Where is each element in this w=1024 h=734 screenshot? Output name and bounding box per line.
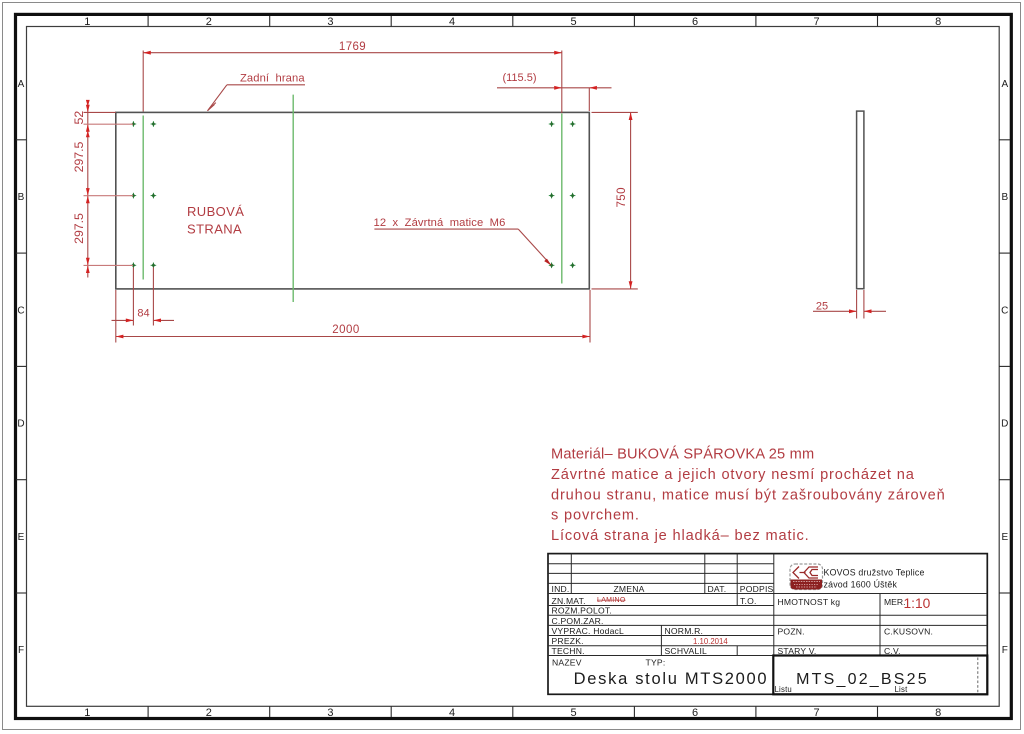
svg-text:5: 5 — [570, 707, 576, 719]
svg-text:7: 7 — [814, 707, 820, 719]
svg-text:4: 4 — [449, 707, 455, 719]
svg-text:PODPIS: PODPIS — [740, 584, 774, 594]
svg-text:7: 7 — [814, 16, 820, 28]
svg-text:Zadní hrana: Zadní hrana — [240, 73, 305, 85]
svg-text:1: 1 — [84, 16, 90, 28]
svg-text:6: 6 — [692, 707, 698, 719]
svg-text:C.POM.ZAR.: C.POM.ZAR. — [552, 616, 604, 626]
svg-text:KOVOS družstvo Teplice: KOVOS družstvo Teplice — [824, 567, 925, 577]
svg-text:1769: 1769 — [339, 41, 366, 53]
svg-text:C: C — [1001, 305, 1008, 316]
svg-text:MTS_02_BS25: MTS_02_BS25 — [796, 671, 929, 688]
svg-text:SCHVALIL: SCHVALIL — [665, 646, 708, 656]
svg-text:DAT.: DAT. — [708, 584, 727, 594]
svg-text:D: D — [1001, 419, 1008, 430]
svg-text:A: A — [18, 79, 25, 90]
svg-text:D: D — [17, 419, 24, 430]
svg-text:750: 750 — [616, 187, 628, 207]
svg-text:297.5: 297.5 — [72, 141, 86, 172]
svg-text:NAZEV: NAZEV — [552, 657, 582, 667]
svg-text:1.10.2014: 1.10.2014 — [693, 637, 728, 646]
svg-text:B: B — [1001, 192, 1008, 203]
svg-text:STRANA: STRANA — [187, 222, 242, 237]
svg-text:druhou stranu, matice musí být: druhou stranu, matice musí být zašroubov… — [551, 487, 946, 503]
svg-text:84: 84 — [137, 307, 149, 319]
svg-text:3: 3 — [327, 16, 333, 28]
svg-text:Lícová strana je hladká– bez m: Lícová strana je hladká– bez matic. — [551, 528, 810, 544]
svg-text:PREZK.: PREZK. — [552, 636, 584, 646]
svg-text:POZN.: POZN. — [778, 626, 805, 636]
svg-text:297.5: 297.5 — [72, 213, 86, 244]
svg-text:VYPRAC. HodacL: VYPRAC. HodacL — [552, 626, 625, 636]
svg-text:B: B — [18, 192, 25, 203]
svg-text:TECHN.: TECHN. — [552, 646, 585, 656]
svg-text:6: 6 — [692, 16, 698, 28]
svg-text:5: 5 — [570, 16, 576, 28]
svg-text:2: 2 — [206, 707, 212, 719]
svg-text:HMOTNOST kg: HMOTNOST kg — [778, 597, 841, 607]
svg-text:T.O.: T.O. — [740, 596, 757, 606]
svg-text:8: 8 — [935, 16, 941, 28]
svg-text:NORM.R.: NORM.R. — [665, 626, 704, 636]
svg-text:(115.5): (115.5) — [502, 72, 536, 84]
svg-text:2000: 2000 — [332, 324, 360, 336]
svg-text:ZMENA: ZMENA — [613, 584, 644, 594]
svg-text:1: 1 — [84, 707, 90, 719]
svg-text:Deska stolu MTS2000: Deska stolu MTS2000 — [574, 670, 769, 688]
svg-text:s povrchem.: s povrchem. — [551, 508, 640, 524]
svg-text:1:10: 1:10 — [904, 596, 931, 611]
svg-text:Materiál– BUKOVÁ SPÁROVKA 25 m: Materiál– BUKOVÁ SPÁROVKA 25 mm — [551, 445, 814, 462]
svg-text:E: E — [1001, 532, 1008, 543]
svg-text:C: C — [17, 305, 24, 316]
svg-text:A: A — [1001, 79, 1008, 90]
svg-text:IND.: IND. — [552, 584, 570, 594]
svg-text:8: 8 — [935, 707, 941, 719]
svg-text:LAMINO: LAMINO — [597, 597, 626, 604]
svg-text:12 x Závrtná matice M6: 12 x Závrtná matice M6 — [374, 217, 506, 229]
svg-text:MER.: MER. — [884, 597, 905, 607]
svg-text:závod 1600 Úštěk: závod 1600 Úštěk — [824, 579, 898, 589]
svg-text:Závrtné matice a jejich otvory: Závrtné matice a jejich otvory nesmí pro… — [551, 467, 915, 483]
svg-text:4: 4 — [449, 16, 455, 28]
svg-text:F: F — [1002, 645, 1008, 656]
svg-text:ZN.MAT.: ZN.MAT. — [552, 596, 586, 606]
svg-text:E: E — [18, 532, 25, 543]
svg-text:C.KUSOVN.: C.KUSOVN. — [884, 626, 933, 636]
svg-text:F: F — [18, 645, 24, 656]
svg-text:25: 25 — [816, 300, 828, 312]
svg-text:RUBOVÁ: RUBOVÁ — [187, 204, 244, 219]
svg-text:List: List — [895, 685, 909, 694]
svg-text:ROZM.POLOT.: ROZM.POLOT. — [552, 606, 612, 616]
svg-text:3: 3 — [327, 707, 333, 719]
svg-text:52: 52 — [72, 111, 86, 125]
svg-text:TYP:: TYP: — [646, 657, 666, 667]
svg-text:2: 2 — [206, 16, 212, 28]
svg-text:Listu: Listu — [775, 685, 792, 694]
